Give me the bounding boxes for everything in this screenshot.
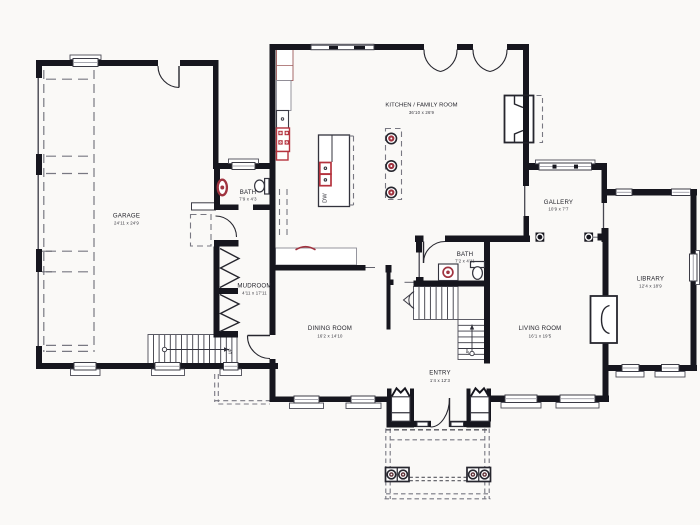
svg-text:16'1 x 19'5: 16'1 x 19'5 <box>529 334 552 339</box>
svg-text:UP: UP <box>228 348 233 354</box>
svg-text:12'4 x 18'9: 12'4 x 18'9 <box>639 284 662 289</box>
svg-text:GARAGE: GARAGE <box>113 213 140 220</box>
svg-text:36'10 x 26'9: 36'10 x 26'9 <box>409 110 435 115</box>
svg-text:BATH: BATH <box>240 189 257 196</box>
svg-text:MUDROOM: MUDROOM <box>237 283 271 290</box>
svg-text:4'11 x 17'11: 4'11 x 17'11 <box>242 291 267 296</box>
svg-text:UP: UP <box>465 349 470 355</box>
svg-text:7'9 x 4'3: 7'9 x 4'3 <box>239 197 257 202</box>
svg-text:24'11 x 24'9: 24'11 x 24'9 <box>114 221 139 226</box>
svg-text:DINING ROOM: DINING ROOM <box>308 325 352 332</box>
svg-text:LIVING ROOM: LIVING ROOM <box>519 325 562 332</box>
svg-text:ENTRY: ENTRY <box>429 370 451 377</box>
svg-text:KITCHEN / FAMILY ROOM: KITCHEN / FAMILY ROOM <box>385 103 457 109</box>
svg-text:GALLERY: GALLERY <box>544 199 573 206</box>
svg-text:BATH: BATH <box>457 251 474 258</box>
svg-text:LIBRARY: LIBRARY <box>637 276 664 283</box>
svg-text:DW: DW <box>323 193 329 203</box>
svg-text:1'4 x 12'3: 1'4 x 12'3 <box>430 378 451 383</box>
svg-text:10'9 x 7'7: 10'9 x 7'7 <box>548 207 569 212</box>
svg-text:7'2 x 4'11: 7'2 x 4'11 <box>455 259 475 264</box>
svg-text:16'2 x 14'10: 16'2 x 14'10 <box>317 334 343 339</box>
